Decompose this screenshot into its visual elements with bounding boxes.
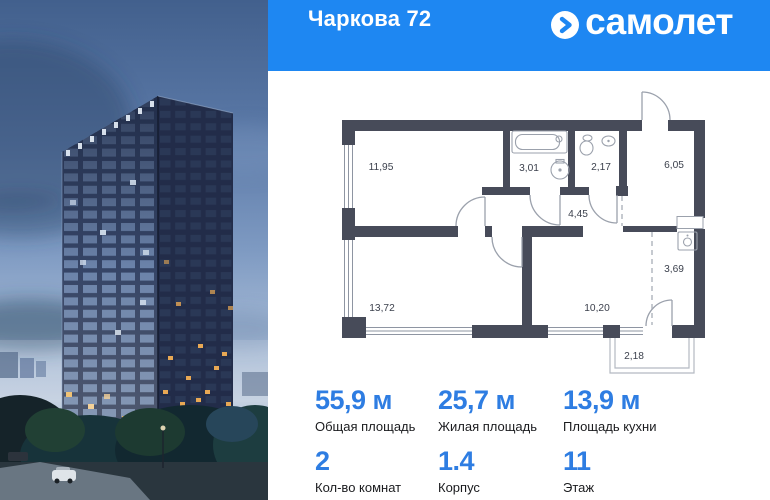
header-bar: Чаркова 72 самолет — [268, 0, 770, 71]
stat-living-area: 25,7 м Жилая площадь — [438, 385, 563, 434]
stat-value: 25,7 м — [438, 385, 563, 415]
room-area-label: 3,69 — [664, 264, 684, 275]
stat-value: 1.4 — [438, 446, 563, 476]
stat-total-area: 55,9 м Общая площадь — [315, 385, 438, 434]
bathtub-icon — [512, 131, 567, 153]
room-area-label: 4,45 — [568, 209, 588, 220]
samolet-arrow-circle-icon — [551, 11, 579, 39]
plan-dashed-boundaries — [622, 196, 652, 325]
project-title: Чаркова 72 — [308, 7, 431, 31]
stat-value: 13,9 м — [563, 385, 755, 415]
floor-plan: 11,95 3,01 2,17 6,05 4,45 13,72 10,20 3,… — [335, 85, 715, 385]
washbasin-icon — [551, 160, 569, 180]
stat-floor: 11 Этаж — [563, 446, 755, 495]
building-photo — [0, 0, 268, 500]
stat-label: Этаж — [563, 480, 755, 495]
stat-value: 11 — [563, 446, 755, 476]
brand-wordmark: самолет — [585, 2, 733, 42]
sink-icon — [602, 136, 615, 146]
stat-label: Общая площадь — [315, 419, 438, 434]
stat-rooms-count: 2 Кол-во комнат — [315, 446, 438, 495]
card-content: Чаркова 72 самолет — [268, 0, 770, 500]
stat-label: Площадь кухни — [563, 419, 755, 434]
stat-label: Корпус — [438, 480, 563, 495]
room-area-label: 10,20 — [584, 303, 610, 314]
room-area-label: 11,95 — [369, 162, 394, 173]
room-area-label: 13,72 — [369, 303, 395, 314]
stat-value: 2 — [315, 446, 438, 476]
stat-building: 1.4 Корпус — [438, 446, 563, 495]
stat-kitchen-area: 13,9 м Площадь кухни — [563, 385, 755, 434]
room-area-label: 2,17 — [591, 162, 611, 173]
vent-shaft — [677, 217, 703, 229]
room-area-label: 6,05 — [664, 160, 684, 171]
room-area-label: 2,18 — [624, 351, 644, 362]
stat-value: 55,9 м — [315, 385, 438, 415]
listing-card: Чаркова 72 самолет — [0, 0, 770, 500]
balcony-outline — [610, 338, 694, 373]
building-illustration — [0, 0, 268, 500]
stat-label: Жилая площадь — [438, 419, 563, 434]
tower — [62, 96, 233, 444]
stats-grid: 55,9 м Общая площадь 25,7 м Жилая площад… — [315, 385, 755, 495]
stat-label: Кол-во комнат — [315, 480, 438, 495]
brand-logo[interactable]: самолет — [551, 2, 733, 42]
toilet-icon — [580, 135, 593, 155]
room-area-label: 3,01 — [519, 163, 539, 174]
